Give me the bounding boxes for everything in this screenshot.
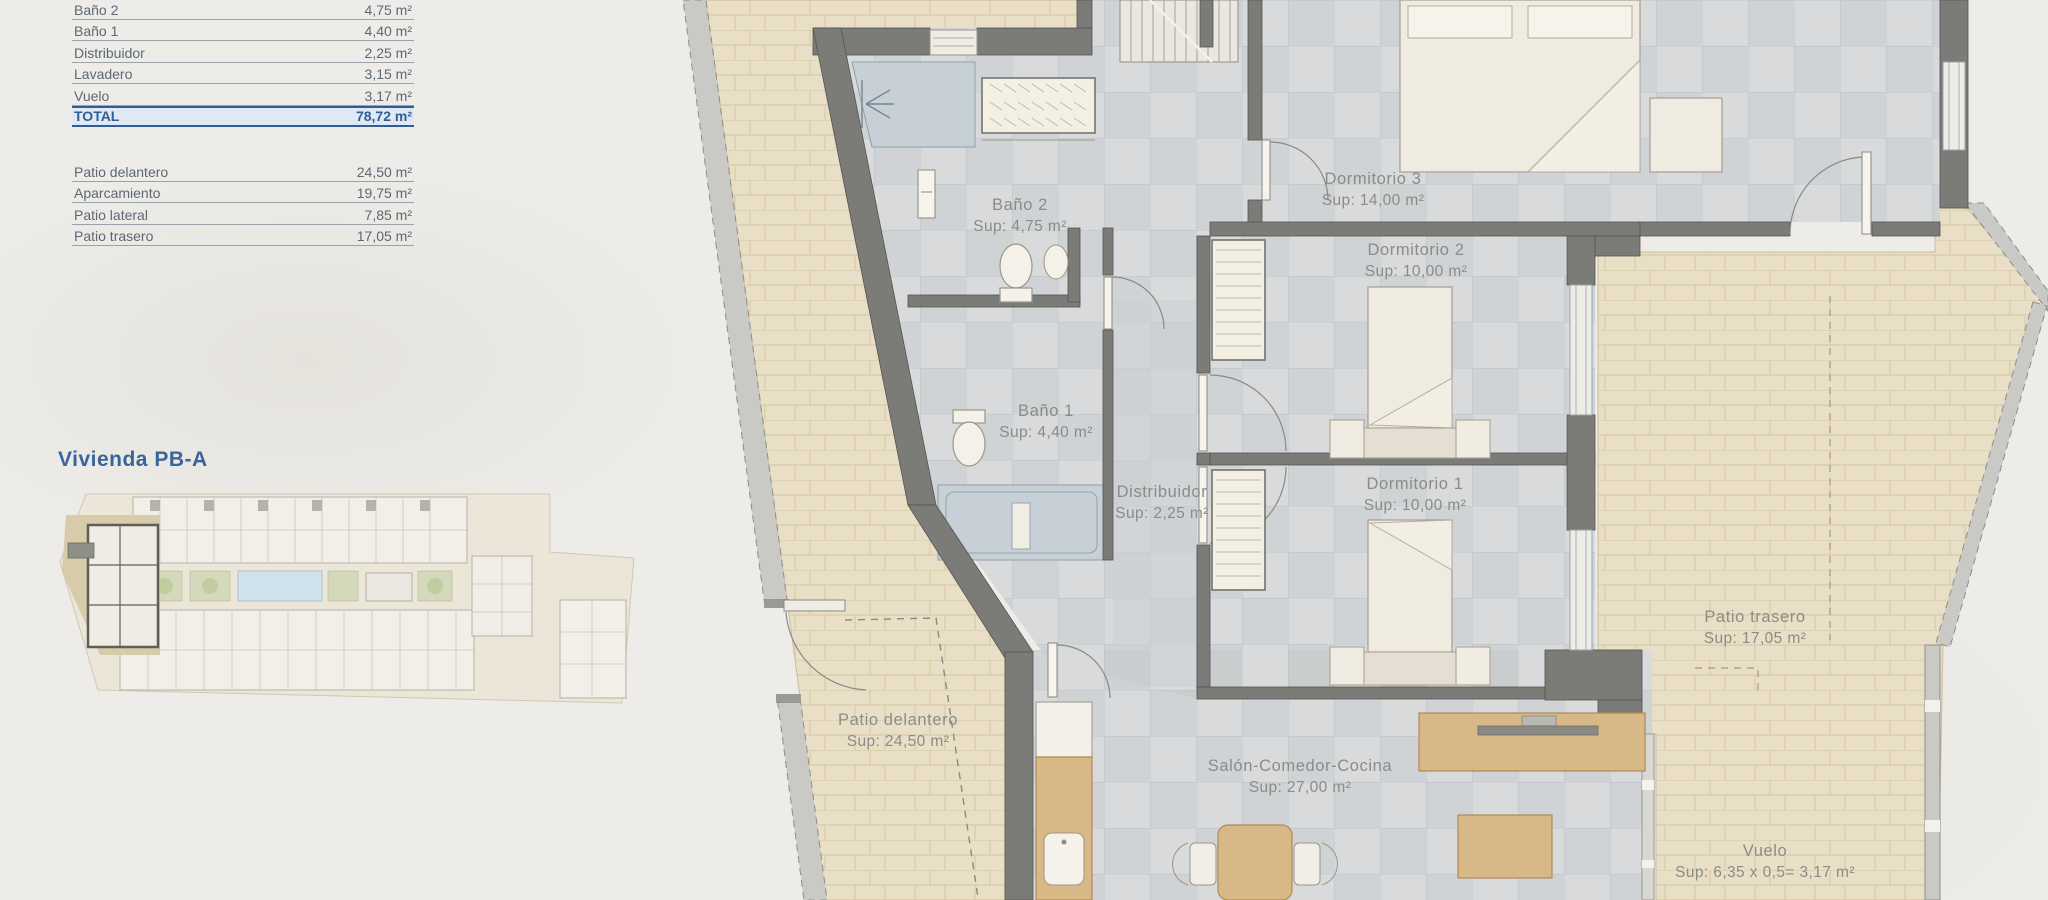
toilet-bano1	[953, 410, 985, 466]
rear-window-gap	[1925, 700, 1940, 712]
nightstand-dormitorio3	[1650, 98, 1722, 172]
glass-wall-gap	[1642, 780, 1654, 790]
thumbnail-pool	[238, 571, 322, 601]
thumbnail-building-row-top	[133, 497, 467, 563]
front-door-sill	[930, 30, 977, 55]
bidet-bano2	[1044, 245, 1068, 279]
wardrobe-dormitorio1	[1212, 470, 1265, 590]
site-plan-thumbnail	[60, 494, 634, 703]
label-patio-delantero: Patio delantero Sup: 24,50 m²	[838, 710, 958, 752]
label-bano2: Baño 2 Sup: 4,75 m²	[973, 195, 1067, 237]
label-dormitorio1: Dormitorio 1 Sup: 10,00 m²	[1364, 474, 1467, 516]
staircase	[1120, 0, 1238, 62]
tv-sideboard	[1419, 713, 1645, 771]
wardrobe-dormitorio2	[1212, 240, 1265, 360]
shower-tray	[852, 62, 975, 147]
label-patio-trasero: Patio trasero Sup: 17,05 m²	[1704, 607, 1807, 649]
kitchen-counter	[1036, 702, 1092, 900]
coffee-table	[1458, 815, 1552, 878]
chair	[1190, 843, 1216, 885]
gate-pier	[776, 694, 801, 703]
thumbnail-highlighted-unit	[62, 515, 160, 655]
door-bano2	[918, 170, 935, 218]
label-vuelo: Vuelo Sup: 6,35 x 0,5= 3,17 m²	[1675, 841, 1855, 883]
toilet-bano2	[1000, 244, 1032, 302]
window-dormitorio3	[1943, 62, 1965, 150]
entry-closet	[982, 78, 1095, 140]
floor-plan-drawing	[0, 0, 2048, 900]
window-dormitorio1	[1570, 530, 1592, 650]
bed-dormitorio3	[1400, 0, 1640, 172]
plan-sheet: Baño 2 4,75 m² Baño 1 4,40 m² Distribuid…	[0, 0, 2048, 900]
tv-icon	[1478, 726, 1598, 735]
label-distribuidor: Distribuidor Sup: 2,25 m²	[1115, 482, 1209, 524]
label-dormitorio2: Dormitorio 2 Sup: 10,00 m²	[1365, 240, 1468, 282]
chair	[1294, 843, 1320, 885]
thumbnail-neighbour-block	[560, 600, 626, 698]
rear-window-gap	[1925, 820, 1940, 832]
label-bano1: Baño 1 Sup: 4,40 m²	[999, 401, 1093, 443]
thumbnail-building-row-bottom	[120, 610, 474, 690]
window-dormitorio2	[1570, 285, 1592, 415]
label-dormitorio3: Dormitorio 3 Sup: 14,00 m²	[1322, 169, 1425, 211]
thumbnail-utility	[366, 573, 412, 601]
glass-wall-gap	[1642, 860, 1654, 868]
label-salon: Salón-Comedor-Cocina Sup: 27,00 m²	[1208, 756, 1392, 798]
